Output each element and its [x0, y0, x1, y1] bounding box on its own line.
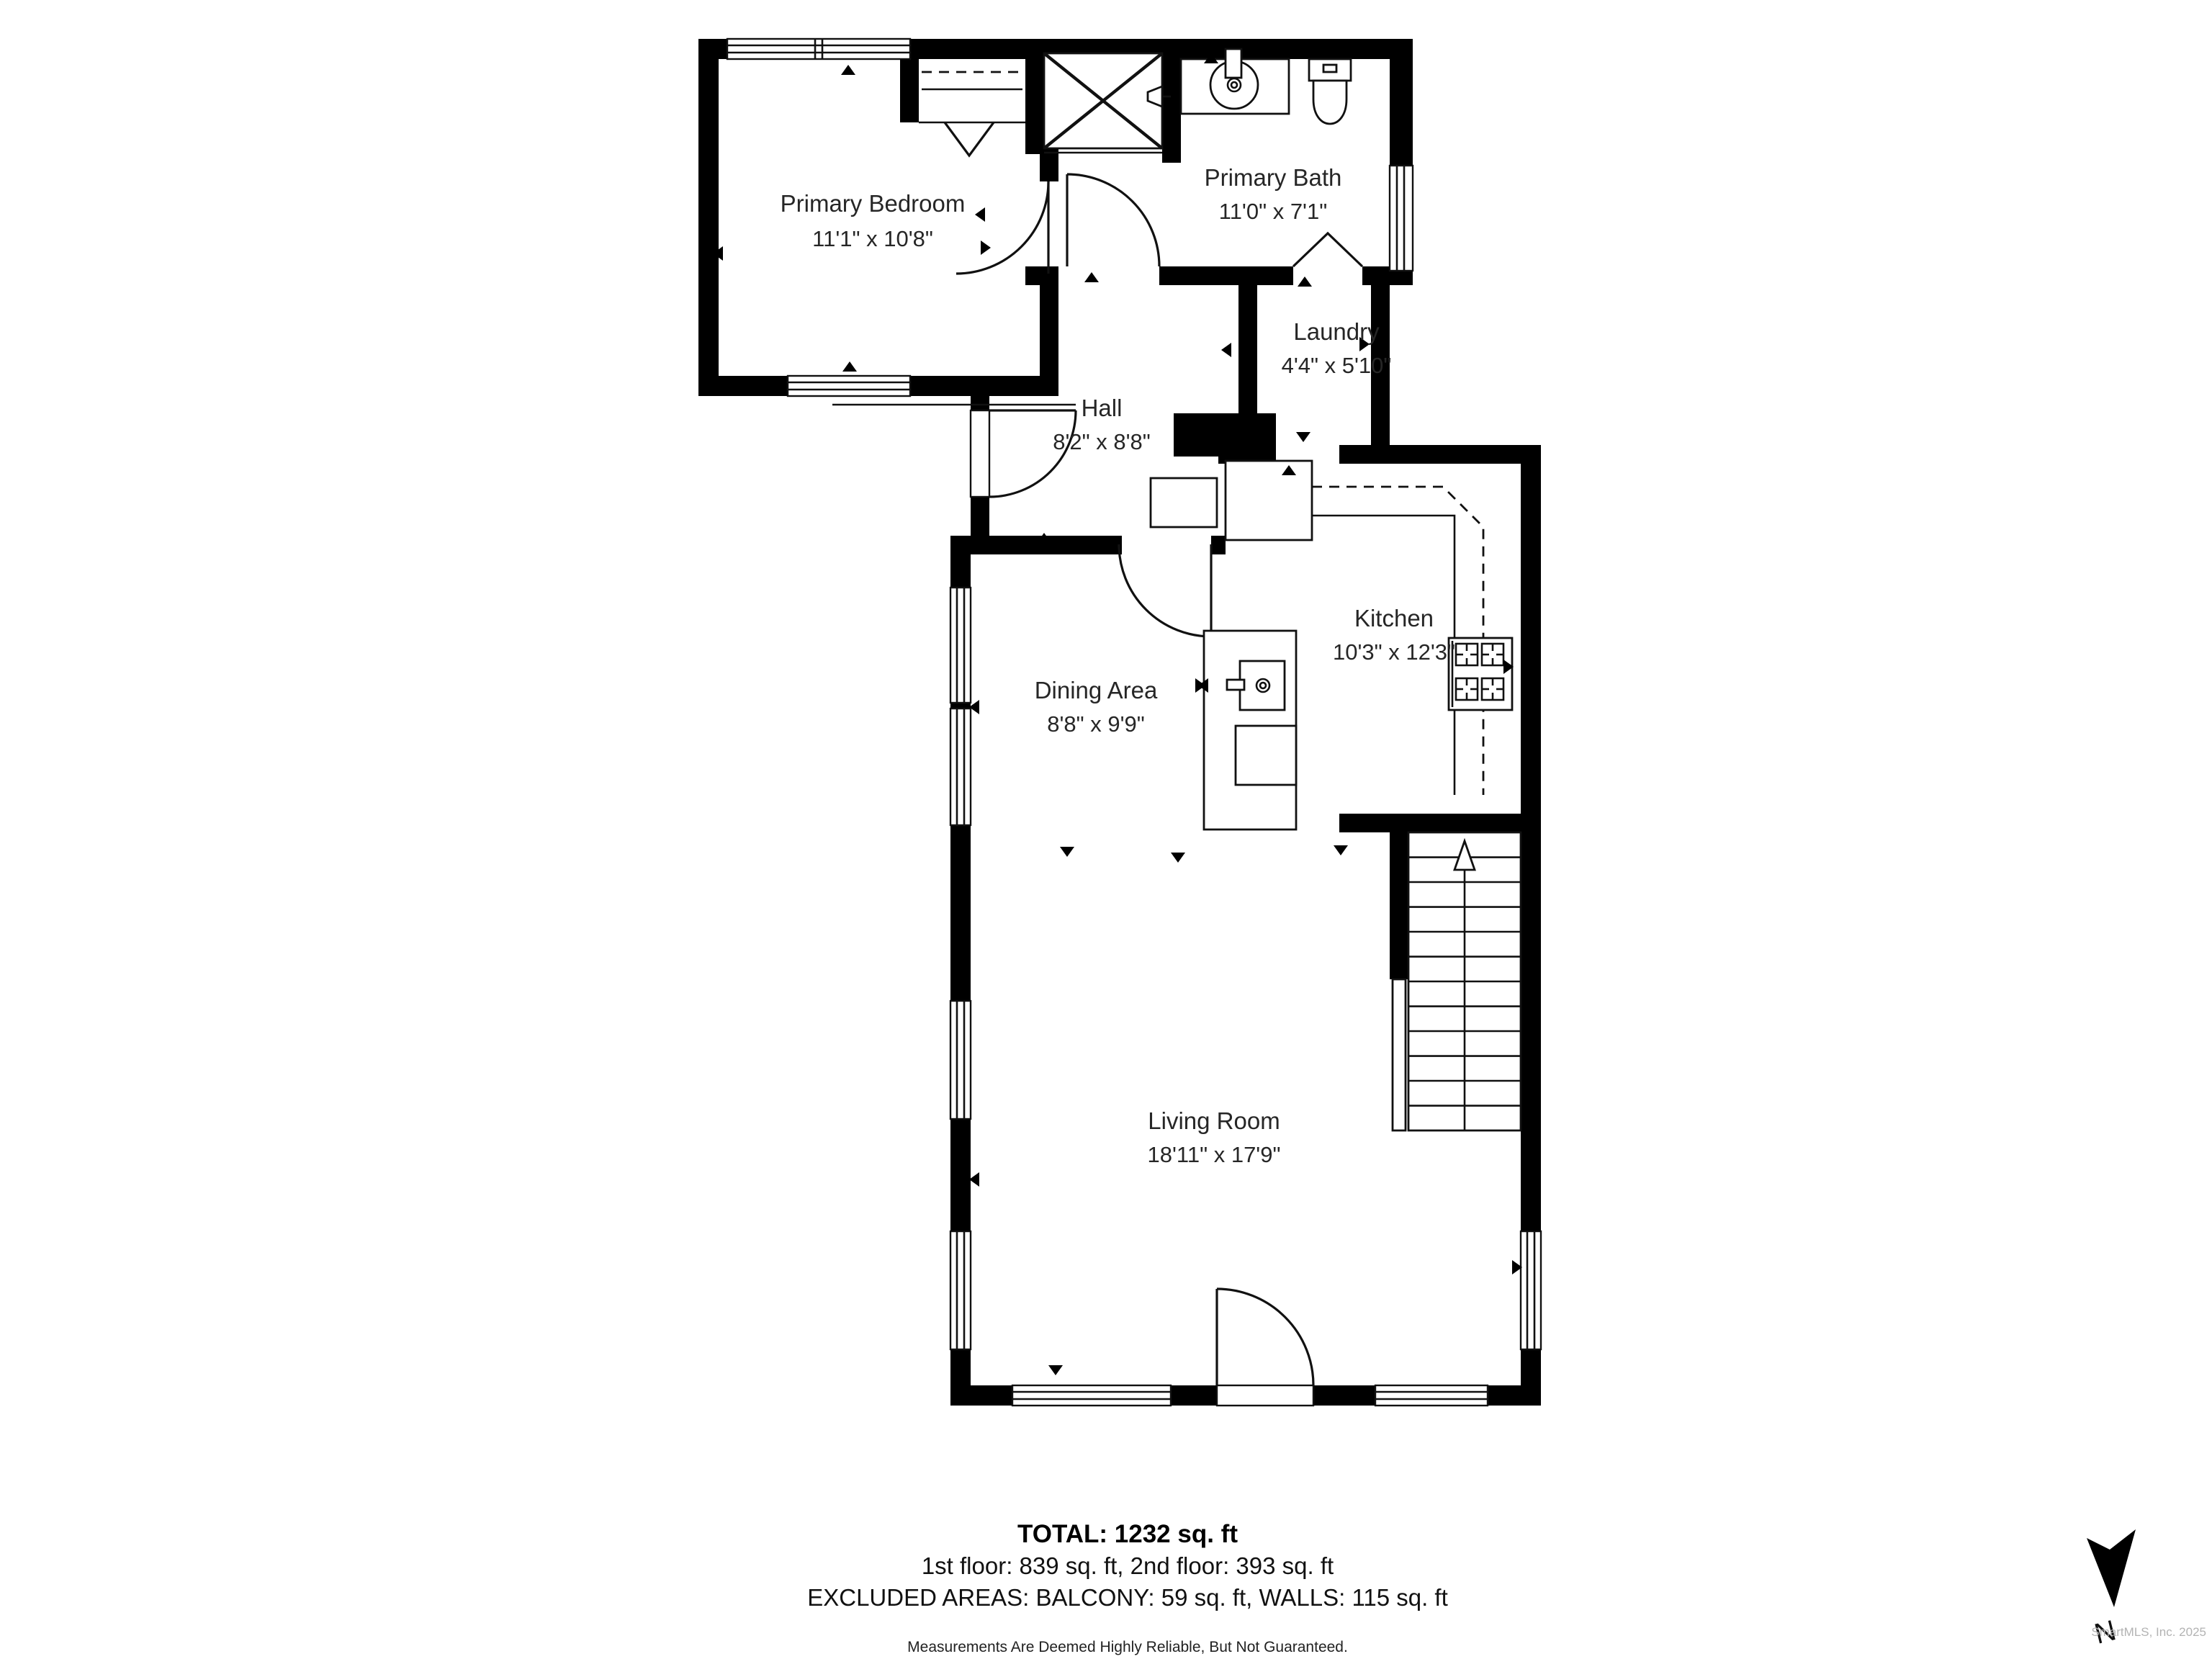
dishwasher — [1236, 726, 1296, 785]
floor-areas-text: 1st floor: 839 sq. ft, 2nd floor: 393 sq… — [922, 1552, 1334, 1579]
watermark-text: SmartMLS, Inc. 2025 — [2091, 1625, 2206, 1639]
disclaimer-text: Measurements Are Deemed Highly Reliable,… — [907, 1639, 1348, 1655]
floor-plan-drawing: Primary Bedroom 11'1" x 10'8" Primary Ba… — [0, 0, 2212, 1659]
room-dims-living-room: 18'11" x 17'9" — [1148, 1142, 1281, 1167]
shower — [1044, 53, 1171, 153]
island-faucet-icon — [1227, 680, 1244, 690]
bath-vanity — [1181, 49, 1289, 114]
pantry-cabinet — [1151, 478, 1217, 527]
room-label-hall: Hall — [1082, 395, 1123, 421]
room-dims-laundry: 4'4" x 5'10" — [1282, 353, 1392, 378]
room-labels: Primary Bedroom 11'1" x 10'8" Primary Ba… — [781, 164, 1455, 1167]
excluded-areas-text: EXCLUDED AREAS: BALCONY: 59 sq. ft, WALL… — [807, 1584, 1448, 1611]
room-label-kitchen: Kitchen — [1354, 605, 1434, 631]
room-label-dining-area: Dining Area — [1035, 677, 1158, 703]
room-label-primary-bath: Primary Bath — [1205, 164, 1342, 191]
handrail — [1393, 979, 1406, 1130]
total-area-text: TOTAL: 1232 sq. ft — [1017, 1520, 1238, 1548]
island-sink — [1240, 661, 1285, 710]
room-dims-hall: 8'2" x 8'8" — [1053, 429, 1151, 454]
summary-block: TOTAL: 1232 sq. ft 1st floor: 839 sq. ft… — [807, 1520, 1448, 1655]
floor-plan-page: Primary Bedroom 11'1" x 10'8" Primary Ba… — [0, 0, 2212, 1659]
room-dims-dining-area: 8'8" x 9'9" — [1047, 711, 1145, 737]
room-label-living-room: Living Room — [1148, 1107, 1280, 1134]
doors — [945, 122, 1362, 1385]
staircase — [1393, 832, 1521, 1130]
room-dims-primary-bath: 11'0" x 7'1" — [1219, 199, 1327, 224]
faucet-icon — [1226, 49, 1241, 78]
closet-detail — [919, 72, 1025, 122]
refrigerator — [1226, 461, 1312, 540]
room-dims-primary-bedroom: 11'1" x 10'8" — [812, 226, 933, 251]
kitchen-island — [1204, 631, 1296, 829]
room-dims-kitchen: 10'3" x 12'3" — [1333, 639, 1455, 665]
room-label-laundry: Laundry — [1293, 318, 1380, 345]
room-label-primary-bedroom: Primary Bedroom — [781, 190, 966, 217]
range-cooktop — [1449, 638, 1512, 710]
toilet — [1309, 59, 1351, 124]
